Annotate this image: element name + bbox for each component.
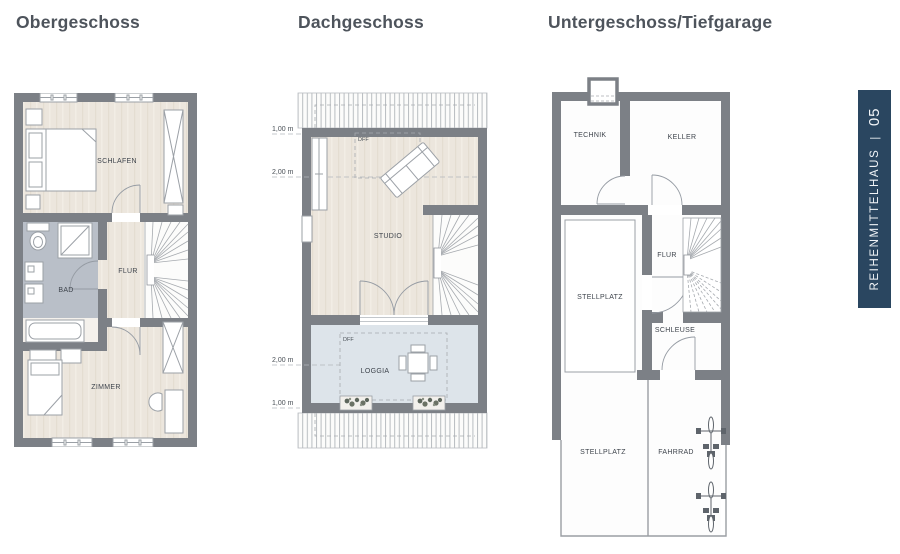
bathtub-icon <box>26 320 84 342</box>
room-label-stellplatz-unten: STELLPLATZ <box>580 449 626 456</box>
banner-text: REIHENMITTELHAUS | 05 <box>858 90 891 308</box>
room-label-loggia: LOGGIA <box>361 368 390 375</box>
room-label-flur: FLUR <box>657 252 676 259</box>
room-label-schleuse: SCHLEUSE <box>655 327 695 334</box>
room-label-keller: KELLER <box>668 134 697 141</box>
room-label-flur: FLUR <box>118 268 137 275</box>
obergeschoss-floorplan: SCHLAFEN BAD FLUR ZIMMER <box>14 93 197 447</box>
floorplan-page: Obergeschoss Dachgeschoss Untergeschoss/… <box>0 0 900 554</box>
single-bed-icon <box>28 360 62 415</box>
shower-icon <box>58 223 92 258</box>
dim-label-1m-bottom: 1,00 m <box>272 400 294 407</box>
sideboard-icon <box>312 138 327 210</box>
window-icon <box>115 93 153 102</box>
dff-label-studio: DFF <box>358 137 369 143</box>
double-bed-icon <box>26 129 96 191</box>
dachgeschoss-floorplan: 1,00 m 2,00 m 2,00 m 1,00 m DFF DFF <box>270 90 490 458</box>
window-icon <box>113 438 153 447</box>
plan-title-untergeschoss: Untergeschoss/Tiefgarage <box>548 12 772 33</box>
room-label-fahrrad: FAHRRAD <box>658 449 694 456</box>
banner-separator: | <box>869 135 881 139</box>
planter-icon <box>340 396 372 410</box>
stairs-icon <box>683 218 721 312</box>
wardrobe-icon <box>163 322 183 373</box>
nightstand-icon <box>26 109 42 125</box>
room-label-zimmer: ZIMMER <box>91 384 120 391</box>
roof-hatch-bottom <box>298 413 487 448</box>
project-banner: REIHENMITTELHAUS | 05 <box>858 90 891 308</box>
dff-label-loggia: DFF <box>343 337 354 343</box>
wardrobe-icon <box>164 110 183 203</box>
dim-label-1m-top: 1,00 m <box>272 126 294 133</box>
banner-number: 05 <box>866 107 883 126</box>
planter-icon <box>413 396 445 410</box>
room-label-studio: STUDIO <box>374 233 402 240</box>
desk-icon <box>165 390 183 433</box>
shelf-icon <box>61 349 81 363</box>
plan-title-obergeschoss: Obergeschoss <box>16 12 140 33</box>
roof-hatch-top <box>298 93 487 128</box>
dim-label-2m-bottom: 2,00 m <box>272 357 294 364</box>
room-label-bad: BAD <box>58 287 73 294</box>
banner-house-type: REIHENMITTELHAUS <box>869 149 881 291</box>
room-label-schlafen: SCHLAFEN <box>97 158 137 165</box>
light-shaft-icon <box>589 79 617 104</box>
room-label-technik: TECHNIK <box>574 132 607 139</box>
window-icon <box>40 93 77 102</box>
dim-label-2m-top: 2,00 m <box>272 169 294 176</box>
shelf-icon <box>168 205 183 215</box>
untergeschoss-floorplan: TECHNIK KELLER STELLPLATZ FLUR SCHLEUSE … <box>545 70 740 550</box>
room-label-stellplatz-mitte: STELLPLATZ <box>577 294 623 301</box>
wall-niche-icon <box>302 216 312 242</box>
plan-title-dachgeschoss: Dachgeschoss <box>298 12 424 33</box>
chair-icon <box>149 393 162 411</box>
nightstand-icon <box>26 195 40 209</box>
loggia-floor <box>311 325 478 403</box>
window-icon <box>52 438 92 447</box>
